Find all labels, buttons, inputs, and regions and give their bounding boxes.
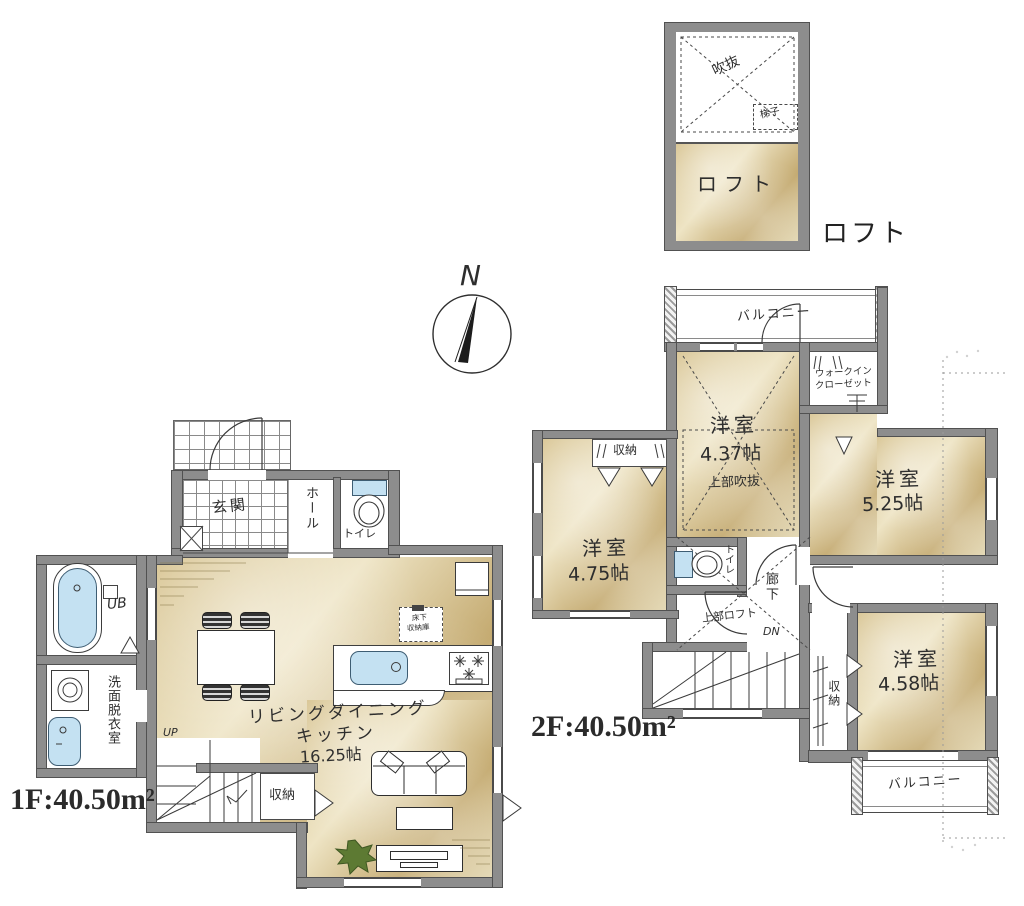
f2-room-right-name: 洋室 xyxy=(875,467,924,492)
f1-tv xyxy=(390,851,448,860)
f1-wall-ub-top xyxy=(36,555,183,565)
f1-window-ldk-right-1 xyxy=(492,600,503,646)
f1-wall-toilet-left xyxy=(333,477,341,558)
f1-bath-label: UB xyxy=(106,595,127,613)
compass-icon xyxy=(433,295,511,373)
f1-chair-4 xyxy=(240,684,270,701)
compass-north-label: N xyxy=(460,260,481,292)
f1-window-ldk-bottom xyxy=(344,877,421,888)
f1-hall-label: ホール xyxy=(302,486,317,531)
f1-stove xyxy=(449,652,489,685)
f1-toilet-label: トイレ xyxy=(343,528,376,541)
f2-room-right-size: 5.25帖 xyxy=(862,493,924,517)
f2-wall-top xyxy=(664,342,888,352)
f2-hallway-label: 廊下 xyxy=(762,572,777,602)
f2-wall-center-left xyxy=(666,342,677,652)
f2-wall-525-top xyxy=(877,428,998,437)
f1-stairs-floor xyxy=(153,738,260,822)
f1-wall-ldk-right xyxy=(492,545,503,888)
f2-wall-toilet-bottom xyxy=(666,585,747,595)
f1-ldk-size-label: 16.25帖 xyxy=(300,745,363,767)
f1-bathtub-icon xyxy=(58,568,97,648)
f1-wall-ldk-bottom-left xyxy=(146,822,308,833)
f2-wall-475-top xyxy=(532,430,678,439)
f2-room-bottom-name: 洋室 xyxy=(893,647,942,672)
f2-wall-wic-bottom xyxy=(799,405,888,414)
f2-closet-bottom-label: 収納 xyxy=(826,680,840,708)
f1-wall-kitchen-top xyxy=(388,545,503,555)
f2-corridor-to-stairs-gap xyxy=(747,642,799,652)
f1-washing-machine-icon xyxy=(51,670,89,711)
f2-door-gap-458 xyxy=(812,603,850,613)
f2-room-center-note: 上部吹抜 xyxy=(708,475,761,492)
f1-underfloor-storage-tab xyxy=(412,605,424,611)
f2-door-gap-525 xyxy=(799,547,810,585)
f2-window-475-left-2 xyxy=(532,556,543,598)
f2-wall-stairs-left xyxy=(642,642,653,718)
f2-wall-wic-right xyxy=(877,287,888,414)
f2-dn-label: DN xyxy=(763,626,780,639)
f1-washroom-door-gap xyxy=(136,690,147,722)
f1-washstand-icon xyxy=(48,717,81,766)
f2-vestibule-strip xyxy=(810,565,998,603)
f1-wall-entrance-bottom xyxy=(171,548,400,558)
f2-room-left-name: 洋室 xyxy=(582,536,631,561)
f2-window-balcony-1 xyxy=(700,342,734,352)
f1-hall-ldk-opening xyxy=(288,548,333,558)
f2-room-left-size: 4.75帖 xyxy=(568,563,630,587)
f1-wall-entrance-top xyxy=(171,470,400,480)
f1-porch-tiles xyxy=(173,420,291,470)
f2-stairs-floor xyxy=(653,652,799,708)
f2-balcony-bottom-pillar-left xyxy=(851,757,863,815)
f1-shoe-box xyxy=(180,526,203,551)
f1-wall-west-outer xyxy=(36,555,47,778)
f2-balcony-bottom-pillar-right xyxy=(987,757,999,815)
f1-chair-3 xyxy=(202,684,232,701)
f2-window-475-bottom xyxy=(570,610,630,619)
f1-dining-table xyxy=(197,630,275,685)
f2-wall-525-bottom xyxy=(799,555,998,565)
f1-toilet-tank xyxy=(352,480,387,496)
f1-ldk-label-2: キッチン xyxy=(296,724,377,748)
f2-area-caption: 2F:40.50m² xyxy=(531,710,676,745)
f1-washroom-label: 洗面脱衣室 xyxy=(104,675,119,745)
f1-area-caption: 1F:40.50m² xyxy=(10,783,155,818)
f1-wall-ub-washroom-divider xyxy=(36,655,146,665)
f2-room-bottom-size: 4.58帖 xyxy=(878,673,940,697)
f2-window-475-left-1 xyxy=(532,463,543,513)
f2-window-balcony-2 xyxy=(737,342,763,352)
loft-caption: ロフト xyxy=(822,220,909,250)
f1-chair-1 xyxy=(202,612,232,629)
f1-underfloor-label-2: 収納庫 xyxy=(407,623,430,633)
f1-window-ldk-left xyxy=(146,588,157,640)
f2-window-458-right xyxy=(985,626,998,696)
f2-room-center-size: 4.37帖 xyxy=(700,443,762,467)
f1-fridge xyxy=(455,562,489,596)
floor-plan-sheet: 吹抜 梯子 ロフト ロフト N バルコニー 収納 ウォークイン クローゼット 洋… xyxy=(0,0,1024,906)
f1-tv-stand xyxy=(400,862,438,868)
f2-window-525-right xyxy=(985,478,998,520)
f2-window-stairs-bottom xyxy=(683,708,762,719)
f1-entrance-door-gap xyxy=(208,470,266,480)
loft-room-label: ロフト xyxy=(697,173,778,196)
f2-toilet-label: トイレ xyxy=(722,544,734,574)
f1-window-ldk-right-2 xyxy=(492,747,503,793)
f1-coffee-table xyxy=(396,807,453,830)
f1-up-label: UP xyxy=(163,727,178,740)
f2-wall-toilet-top xyxy=(666,537,747,547)
f1-kitchen-sink-icon xyxy=(350,651,408,685)
f2-room-525-floor-a xyxy=(810,414,877,555)
f1-closet-label: 収納 xyxy=(269,789,295,804)
f1-chair-2 xyxy=(240,612,270,629)
f2-wall-458-left xyxy=(847,603,858,753)
f2-toilet-tank xyxy=(674,551,693,578)
f2-closet-left-label: 収納 xyxy=(613,444,637,458)
f2-balcony-pillar-left xyxy=(664,286,677,344)
f2-room-center-name: 洋室 xyxy=(710,413,759,438)
